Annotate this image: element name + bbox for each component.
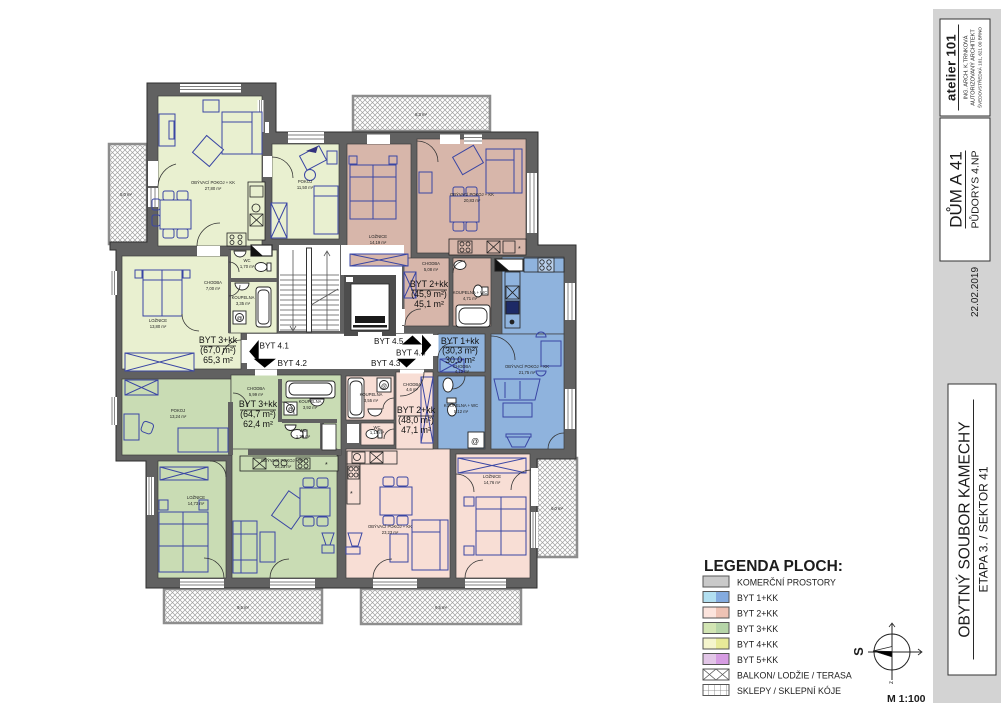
svg-text:BYT 4.4: BYT 4.4 — [396, 349, 426, 358]
svg-text:WC: WC — [244, 258, 251, 263]
svg-text:5,08 m²: 5,08 m² — [424, 267, 439, 272]
svg-text:ING. ARCH. K.TRNKOVÁ: ING. ARCH. K.TRNKOVÁ — [963, 35, 970, 99]
svg-text:23,23 m²: 23,23 m² — [275, 464, 292, 469]
svg-text:8,3 m²: 8,3 m² — [415, 112, 427, 117]
svg-text:OBYTNÝ SOUBOR KAMECHY: OBYTNÝ SOUBOR KAMECHY — [957, 421, 974, 637]
svg-text:ŠVEDOVSTŘEDKÁ 101, 621 00 BRNO: ŠVEDOVSTŘEDKÁ 101, 621 00 BRNO — [976, 27, 983, 108]
svg-text:4,71 m²: 4,71 m² — [463, 296, 478, 301]
svg-text:DŮM A 41: DŮM A 41 — [947, 151, 966, 228]
svg-text:CHODBA: CHODBA — [422, 261, 440, 266]
svg-text:POKOJ: POKOJ — [298, 179, 312, 184]
svg-text:CHODBA: CHODBA — [204, 280, 222, 285]
svg-text:KOUPELNA: KOUPELNA — [232, 295, 255, 300]
svg-text:14,76 m²: 14,76 m² — [484, 480, 501, 485]
svg-text:BYT 4.1: BYT 4.1 — [260, 342, 290, 351]
svg-text:14,19 m²: 14,19 m² — [370, 240, 387, 245]
svg-text:OBÝVACÍ POKOJ + KK: OBÝVACÍ POKOJ + KK — [505, 364, 549, 369]
svg-text:BYT 4.5: BYT 4.5 — [374, 337, 404, 346]
svg-text:*: * — [325, 462, 328, 469]
svg-text:@: @ — [471, 437, 479, 446]
svg-text:27,80 m²: 27,80 m² — [205, 186, 222, 191]
svg-text:20,83 m²: 20,83 m² — [464, 198, 481, 203]
svg-text:PŮDORYS 4.NP: PŮDORYS 4.NP — [969, 151, 982, 229]
svg-text:LOŽNICE: LOŽNICE — [149, 318, 167, 323]
svg-text:11,50 m²: 11,50 m² — [297, 185, 314, 190]
svg-text:9,5 m²: 9,5 m² — [237, 605, 249, 610]
svg-text:45,1 m²: 45,1 m² — [414, 299, 444, 309]
svg-text:atelier 101: atelier 101 — [944, 34, 959, 101]
svg-text:BYT 1+KK: BYT 1+KK — [737, 593, 778, 603]
svg-text:LOŽNICE: LOŽNICE — [369, 234, 387, 239]
svg-text:65,3 m²: 65,3 m² — [203, 355, 233, 365]
svg-text:BYT 4.3: BYT 4.3 — [371, 359, 401, 368]
svg-text:BYT 3+kk: BYT 3+kk — [239, 399, 278, 409]
svg-text:22.02.2019: 22.02.2019 — [970, 267, 981, 317]
svg-text:1,70 m²: 1,70 m² — [240, 264, 255, 269]
svg-text:OBÝVACÍ POKOJ + KK: OBÝVACÍ POKOJ + KK — [450, 192, 494, 197]
svg-text:BYT 5+KK: BYT 5+KK — [737, 655, 778, 665]
svg-text:M 1:100: M 1:100 — [887, 693, 926, 705]
svg-text:1,14 m²: 1,14 m² — [370, 430, 385, 435]
svg-text:BYT 4.2: BYT 4.2 — [278, 359, 308, 368]
svg-text:5,0 m²: 5,0 m² — [120, 192, 132, 197]
svg-text:BYT 2+kk: BYT 2+kk — [397, 405, 436, 415]
svg-text:KOUPELNA + WC: KOUPELNA + WC — [444, 403, 478, 408]
svg-text:(48,0 m²): (48,0 m²) — [398, 415, 434, 425]
svg-text:z: z — [889, 681, 895, 684]
svg-text:7,00 m²: 7,00 m² — [206, 286, 221, 291]
svg-text:BALKON/ LODŽIE / TERASA: BALKON/ LODŽIE / TERASA — [737, 671, 852, 681]
svg-text:4,6 m²: 4,6 m² — [406, 387, 418, 392]
svg-text:30,0 m²: 30,0 m² — [445, 355, 475, 365]
svg-text:(45,9 m²): (45,9 m²) — [411, 289, 447, 299]
svg-text:WC: WC — [300, 428, 307, 433]
svg-text:OBÝVACÍ POKOJ + KK: OBÝVACÍ POKOJ + KK — [261, 458, 305, 463]
svg-text:14,73 m²: 14,73 m² — [188, 501, 205, 506]
svg-text:3,92 m²: 3,92 m² — [303, 405, 318, 410]
svg-text:9,5 m²: 9,5 m² — [435, 605, 447, 610]
svg-text:6,0 m²: 6,0 m² — [551, 506, 563, 511]
svg-text:BYT 2+KK: BYT 2+KK — [737, 609, 778, 619]
svg-text:CHODBA: CHODBA — [247, 386, 265, 391]
svg-text:4,12 m²: 4,12 m² — [455, 369, 470, 374]
svg-text:3,55 m²: 3,55 m² — [364, 398, 379, 403]
svg-text:KOUPELNA + WC: KOUPELNA + WC — [453, 290, 487, 295]
svg-text:LEGENDA PLOCH:: LEGENDA PLOCH: — [704, 558, 843, 575]
svg-text:13,24 m²: 13,24 m² — [170, 414, 187, 419]
svg-text:BYT 4+KK: BYT 4+KK — [737, 640, 778, 650]
svg-text:*: * — [518, 246, 521, 253]
svg-text:BYT 3+KK: BYT 3+KK — [737, 624, 778, 634]
svg-text:13,80 m²: 13,80 m² — [150, 324, 167, 329]
svg-text:KOUPELNA: KOUPELNA — [360, 392, 383, 397]
svg-text:SKLEPY / SKLEPNÍ KÓJE: SKLEPY / SKLEPNÍ KÓJE — [737, 686, 841, 696]
svg-text:3,35 m²: 3,35 m² — [236, 301, 251, 306]
svg-text:BYT 3+kk: BYT 3+kk — [199, 335, 238, 345]
svg-text:1,70 m²: 1,70 m² — [296, 434, 311, 439]
svg-text:ETAPA 3. / SEKTOR 41: ETAPA 3. / SEKTOR 41 — [977, 466, 991, 592]
svg-text:KOUPELNA: KOUPELNA — [299, 399, 322, 404]
svg-text:(64,7 m²): (64,7 m²) — [240, 409, 276, 419]
svg-text:KOMERČNÍ PROSTORY: KOMERČNÍ PROSTORY — [737, 578, 836, 588]
svg-text:OBÝVACÍ POKOJ + KK: OBÝVACÍ POKOJ + KK — [368, 524, 412, 529]
svg-text:BYT 1+kk: BYT 1+kk — [441, 336, 480, 346]
svg-text:62,4 m²: 62,4 m² — [243, 419, 273, 429]
svg-text:*: * — [350, 491, 353, 498]
svg-text:BYT 2+kk: BYT 2+kk — [410, 279, 449, 289]
svg-text:@: @ — [381, 384, 387, 390]
svg-text:5,12 m²: 5,12 m² — [454, 409, 469, 414]
svg-text:POKOJ: POKOJ — [171, 408, 185, 413]
svg-text:23,23 m²: 23,23 m² — [382, 530, 399, 535]
svg-text:S: S — [851, 647, 866, 656]
svg-text:(67,0 m²): (67,0 m²) — [200, 345, 236, 355]
svg-text:OBÝVACÍ POKOJ + KK: OBÝVACÍ POKOJ + KK — [191, 180, 235, 185]
svg-text:47,1 m²: 47,1 m² — [401, 425, 431, 435]
svg-text:LOŽNICE: LOŽNICE — [187, 495, 205, 500]
svg-text:LOŽNICE: LOŽNICE — [483, 474, 501, 479]
svg-text:AUTORIZOVANÝ ARCHITEKT: AUTORIZOVANÝ ARCHITEKT — [970, 29, 977, 106]
svg-text:@: @ — [237, 317, 243, 323]
svg-text:5,99 m²: 5,99 m² — [249, 392, 264, 397]
svg-text:21,75 m²: 21,75 m² — [519, 370, 536, 375]
